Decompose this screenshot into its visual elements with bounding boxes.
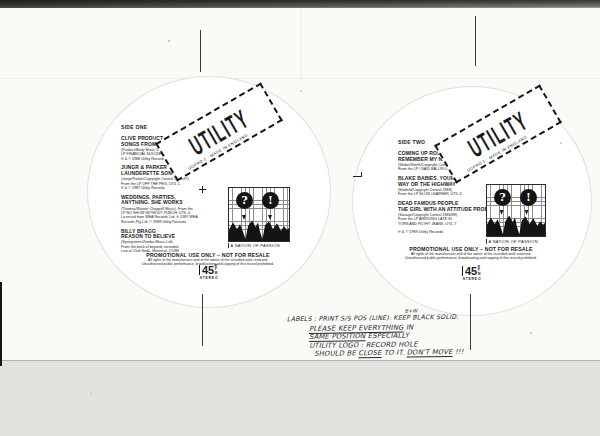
speed-badge: 45 RPM STEREO	[353, 266, 591, 281]
sheet-edge-line	[0, 282, 2, 366]
scanned-proof-sheet: SIDE ONE CLIVE PRODUCT SONGS FROM AN UNT…	[0, 0, 600, 436]
registration-mark	[202, 294, 203, 346]
note-text: LABELS : PRINT S/S POS (LINE). KEEP BLAC…	[287, 313, 459, 322]
handwritten-note: B+W LABELS : PRINT S/S POS (LINE). KEEP …	[287, 313, 464, 358]
faint-guide-line-horizontal	[0, 78, 600, 79]
record-label-side-one: SIDE ONE CLIVE PRODUCT SONGS FROM AN UNT…	[87, 76, 331, 308]
track-title: REASON TO BELIEVE	[121, 234, 228, 240]
registration-mark	[200, 30, 201, 72]
record-label-side-two: SIDE TWO COMING UP ROSES REMEMBER MY NAM…	[352, 86, 592, 316]
track-title: ANYTHING. SHE WORKS	[121, 200, 228, 206]
waveform-graphic	[487, 210, 545, 236]
question-mark-icon: ?	[236, 192, 253, 209]
note-text: TO IT.	[381, 348, 406, 356]
centre-hole-mark	[202, 186, 203, 193]
faint-fold-line	[301, 8, 302, 78]
track-entry: WEDDINGS, PARTIES, ANYTHING. SHE WORKS (…	[121, 195, 228, 224]
question-mark-icon: ?	[494, 189, 511, 206]
side-one-heading: SIDE ONE	[121, 124, 147, 130]
artwork-sheet: SIDE ONE CLIVE PRODUCT SONGS FROM AN UNT…	[0, 8, 600, 361]
speed-badge: 45 RPM STEREO	[88, 265, 330, 280]
note-text: SHOULD BE	[314, 349, 358, 358]
nation-of-passion-caption: A NATION OF PASSION	[228, 243, 280, 248]
rpm-text: RPM	[478, 266, 482, 276]
side-two-heading: SIDE TWO	[398, 139, 425, 145]
note-text-underlined: DON'T MOVE	[407, 348, 453, 357]
rpm-badge: 45 RPM	[462, 266, 481, 276]
scan-specks	[168, 40, 170, 42]
speed-45: 45	[465, 266, 477, 276]
track-credits: (Thomas/Warner Chappell Music). From the…	[121, 207, 228, 225]
stereo-text: STEREO	[200, 276, 219, 280]
note-text: IN	[403, 324, 413, 332]
speed-45: 45	[202, 265, 214, 275]
stereo-text: STEREO	[463, 277, 482, 281]
note-insert: B+W	[405, 307, 418, 315]
registration-mark	[470, 294, 471, 350]
rpm-text: RPM	[215, 265, 219, 275]
nation-of-passion-graphic: ? !	[486, 184, 546, 237]
waveform-graphic	[229, 215, 289, 241]
exclamation-mark-icon: !	[262, 192, 279, 209]
registration-mark	[475, 16, 476, 66]
promo-notice: PROMOTIONAL USE ONLY – NOT FOR RESALE Al…	[371, 246, 571, 260]
track-entry: BILLY BRAGG REASON TO BELIEVE (Springste…	[121, 229, 228, 254]
rpm-badge: 45 RPM	[199, 265, 218, 275]
track-credits: (Jungr/Parker/Copyright Control 1985/87)…	[121, 177, 228, 190]
centre-hole-mark	[361, 172, 362, 177]
nation-of-passion-graphic: ? !	[228, 187, 290, 242]
note-text-underlined: CLOSE	[358, 349, 381, 357]
nation-of-passion-caption: A NATION OF PASSION	[486, 239, 538, 244]
promo-fine-print: Unauthorised public performance, broadca…	[371, 256, 571, 260]
note-text: !!!	[452, 348, 463, 356]
note-line: B+W LABELS : PRINT S/S POS (LINE). KEEP …	[287, 313, 464, 324]
exclamation-mark-icon: !	[520, 189, 537, 206]
